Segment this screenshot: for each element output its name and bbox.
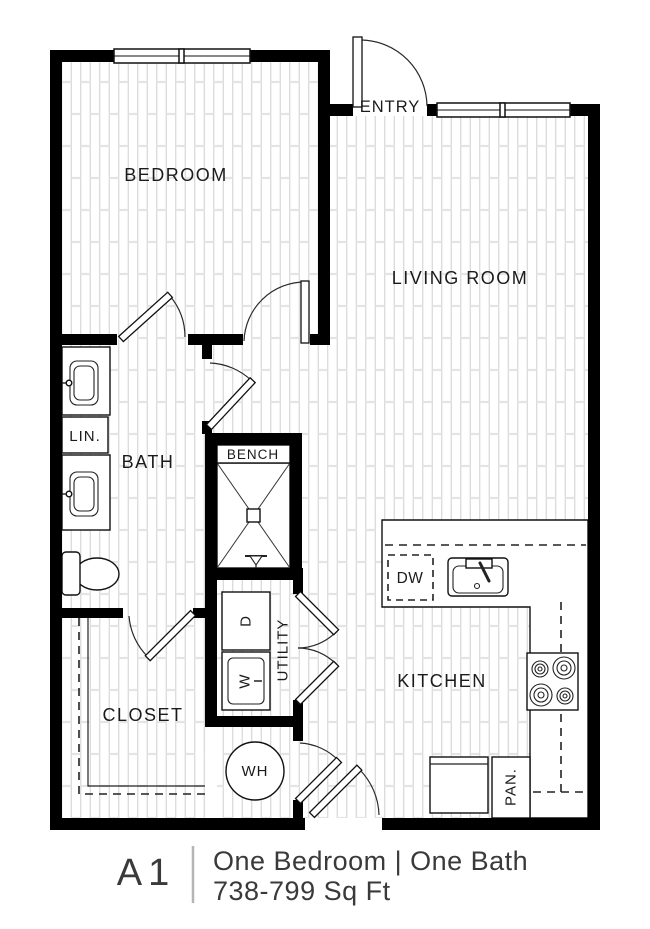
- faucet-icon: [66, 491, 72, 497]
- kitchen-label: KITCHEN: [397, 671, 487, 691]
- washer-label: W: [237, 673, 254, 688]
- wall: [50, 334, 117, 345]
- beds-baths-text: One Bedroom | One Bath: [213, 846, 528, 876]
- bedroom-window-divider: [179, 49, 184, 63]
- toilet-bowl: [75, 558, 119, 590]
- bedroom-label: BEDROOM: [124, 165, 228, 185]
- bath-label: BATH: [122, 452, 175, 472]
- plan-code: A1: [117, 852, 175, 894]
- water-heater-label: WH: [242, 763, 269, 780]
- wall: [205, 580, 217, 727]
- linen-label: LIN.: [69, 428, 101, 445]
- doorway-strip: [202, 359, 212, 421]
- wall: [205, 716, 303, 727]
- wall: [293, 727, 303, 741]
- shower-drain-icon: [247, 509, 260, 522]
- wall: [205, 433, 302, 445]
- doorway-strip: [243, 334, 310, 345]
- entry-door-arc: [362, 40, 427, 106]
- utility-label: UTILITY: [275, 619, 292, 682]
- entry-door: [353, 37, 362, 107]
- living-room-window-divider: [500, 103, 505, 117]
- entry-label: ENTRY: [360, 98, 421, 116]
- wall: [50, 818, 305, 830]
- caption: A1 One Bedroom | One Bath 738-799 Sq Ft: [117, 846, 528, 906]
- bedroom-door: [301, 281, 309, 343]
- wall: [427, 104, 437, 116]
- doorway-strip: [123, 608, 193, 618]
- floor-plan-canvas: BEDROOM ENTRY LIVING ROOM BATH LIN. BENC…: [0, 0, 650, 924]
- wall: [205, 568, 303, 580]
- faucet-icon: [66, 380, 72, 386]
- wall: [202, 345, 212, 359]
- pantry-label: PAN.: [503, 768, 520, 806]
- wall: [50, 608, 123, 618]
- hallway-floor: [207, 345, 330, 435]
- refrigerator: [430, 757, 488, 813]
- dishwasher-label: DW: [397, 570, 424, 587]
- bedroom-floor: [62, 62, 318, 334]
- wall: [382, 818, 600, 830]
- closet-label: CLOSET: [102, 705, 183, 725]
- doorway-strip: [293, 594, 303, 700]
- square-feet-text: 738-799 Sq Ft: [213, 876, 391, 906]
- doorway-strip: [293, 741, 303, 800]
- wall: [50, 50, 62, 830]
- floor-plan-page: BEDROOM ENTRY LIVING ROOM BATH LIN. BENC…: [0, 0, 650, 924]
- living-room-label: LIVING ROOM: [392, 268, 529, 288]
- dryer-label: D: [238, 615, 255, 627]
- wall: [570, 104, 600, 116]
- wall: [318, 50, 330, 345]
- bench-label: BENCH: [227, 447, 279, 462]
- wall: [290, 445, 302, 568]
- wall: [588, 104, 600, 830]
- wall: [205, 445, 217, 568]
- wall: [310, 334, 318, 345]
- toilet-tank: [62, 552, 80, 595]
- wall: [188, 334, 243, 345]
